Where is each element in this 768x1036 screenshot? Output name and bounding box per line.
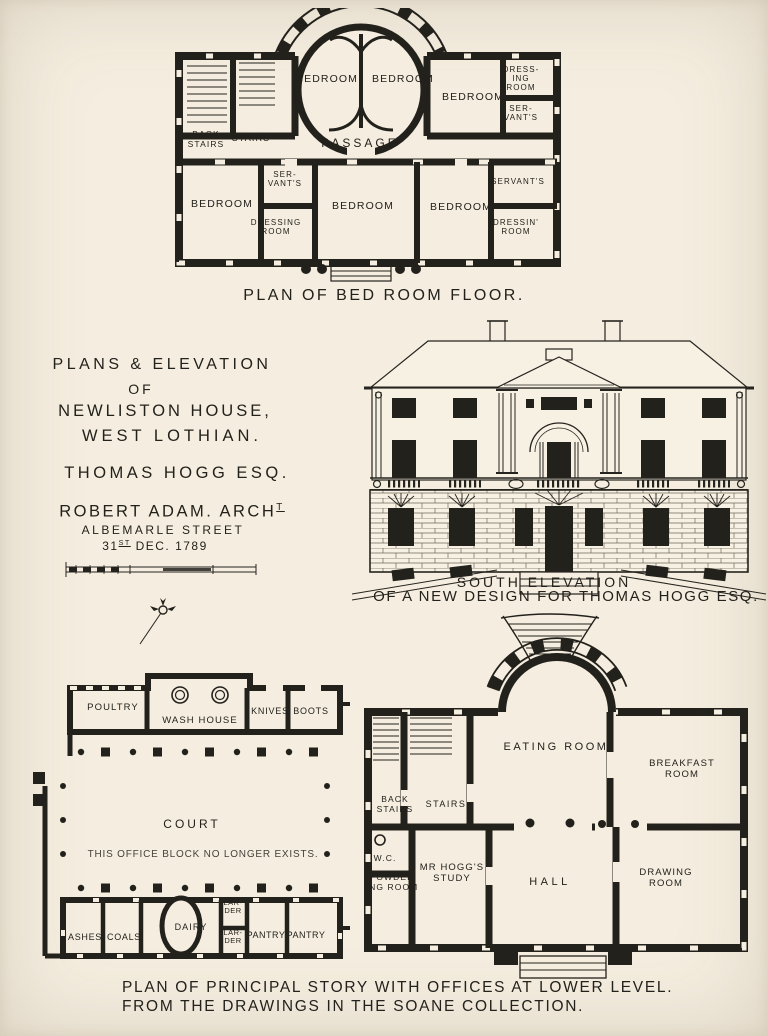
room-label-bedroom: BEDROOM xyxy=(430,202,492,214)
annotation-office-block-note: THIS OFFICE BLOCK NO LONGER EXISTS. xyxy=(88,849,319,860)
scanned-architectural-sheet: BACK STAIRS STAIRS BEDROOM BEDROOM BEDRO… xyxy=(0,0,768,1036)
sheet-caption-line2: FROM THE DRAWINGS IN THE SOANE COLLECTIO… xyxy=(122,998,673,1017)
room-label-bedroom: BEDROOM xyxy=(332,201,394,213)
room-label-passage: PASSAGE xyxy=(321,137,398,150)
room-label-hall: HALL xyxy=(529,876,571,888)
room-label-wash-house: WASH HOUSE xyxy=(162,716,238,727)
title-line-of: OF xyxy=(128,382,153,398)
room-label-larder: LAR- DER xyxy=(216,929,250,946)
room-label-bedroom: BEDROOM xyxy=(296,74,358,86)
room-label-servants: SERVANT'S xyxy=(491,178,545,187)
room-label-back-stairs: BACK STAIRS xyxy=(372,795,418,814)
room-label-dairy: DAIRY xyxy=(175,922,208,932)
bedroom-plan-caption: PLAN OF BED ROOM FLOOR. xyxy=(243,287,525,305)
elevation-caption-line2: OF A NEW DESIGN FOR THOMAS HOGG ESQ. xyxy=(373,589,759,606)
room-label-coals: COALS xyxy=(107,932,141,942)
room-label-dressing-room: DRESSIN' ROOM xyxy=(490,219,542,237)
title-line-house-name: NEWLISTON HOUSE, xyxy=(58,402,272,420)
sheet-caption: PLAN OF PRINCIPAL STORY WITH OFFICES AT … xyxy=(122,979,673,1017)
room-label-bedroom: BEDROOM xyxy=(372,74,434,86)
room-label-back-stairs: BACK STAIRS xyxy=(184,130,228,149)
room-label-pantry: PANTRY xyxy=(287,930,326,940)
title-line-plans-elevation: PLANS & ELEVATION xyxy=(53,356,272,374)
south-elevation-drawing xyxy=(350,318,768,610)
room-label-dressing-room: DRESS- ING ROOM xyxy=(498,66,544,93)
room-label-bedroom: BEDROOM xyxy=(442,92,504,104)
room-label-stairs: STAIRS xyxy=(232,133,270,143)
architect-superscript: T xyxy=(276,502,285,513)
sheet-caption-line1: PLAN OF PRINCIPAL STORY WITH OFFICES AT … xyxy=(122,979,673,998)
room-label-poultry: POULTRY xyxy=(87,703,139,714)
title-line-county: WEST LOTHIAN. xyxy=(82,427,262,445)
title-line-address: ALBEMARLE STREET xyxy=(82,524,245,537)
room-label-eating-room: EATING ROOM xyxy=(504,741,609,753)
room-label-drawing-room: DRAWING ROOM xyxy=(635,868,697,889)
room-label-bedroom: BEDROOM xyxy=(191,199,253,211)
room-label-ashes: ASHES xyxy=(68,932,102,942)
room-label-pantry: PANTRY xyxy=(247,930,286,940)
scale-bar xyxy=(66,562,256,577)
room-label-boots: BOOTS xyxy=(293,706,329,716)
compass-icon xyxy=(140,598,176,644)
room-label-servants: SER- VANT'S xyxy=(500,105,542,123)
room-label-breakfast-room: BREAKFAST ROOM xyxy=(647,759,717,780)
room-label-court: COURT xyxy=(163,818,220,831)
title-line-architect: ROBERT ADAM. ARCHT xyxy=(59,502,285,521)
room-label-servants: SER- VANT'S xyxy=(264,171,306,189)
room-label-mr-hoggs-study: MR HOGG'S STUDY xyxy=(408,863,496,884)
room-label-larder: LAR- DER xyxy=(216,899,250,916)
room-label-wc: W.C. xyxy=(374,854,397,864)
room-label-stairs: STAIRS xyxy=(426,799,467,809)
room-label-knives: KNIVES xyxy=(251,706,289,716)
title-line-date: 31ST DEC. 1789 xyxy=(102,539,208,553)
scale-bar-and-compass xyxy=(58,558,268,646)
title-line-client: THOMAS HOGG ESQ. xyxy=(64,464,290,482)
architect-name: ROBERT ADAM. ARCH xyxy=(59,503,276,521)
room-label-dressing-room: DRESSING ROOM xyxy=(245,219,307,237)
